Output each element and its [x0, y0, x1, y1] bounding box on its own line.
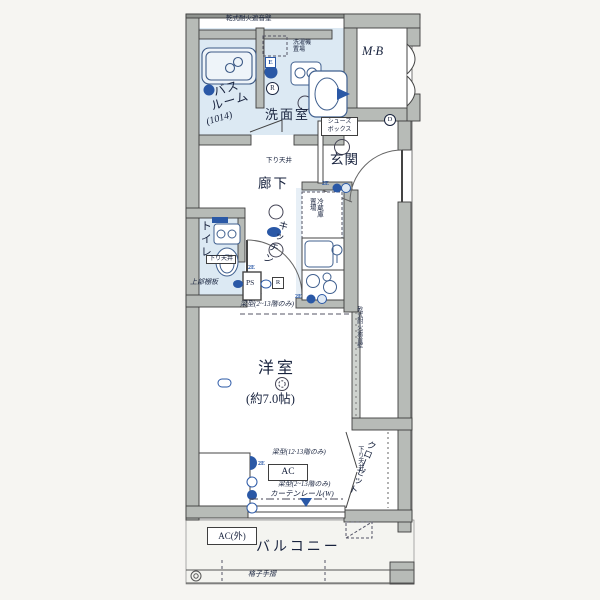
floor-plan: 乾式耐火遮音壁 バス ルーム (1014) 洗濯機 置場 E R 洗面室 M·B…	[0, 0, 600, 600]
toilet-label: トイレ	[199, 220, 211, 259]
toilet-tank-knob1	[217, 230, 225, 238]
right-outer-wall	[398, 202, 411, 532]
wall-switch-icon	[218, 379, 231, 387]
closet-bottom-wall	[344, 510, 412, 522]
left-wall	[186, 14, 199, 520]
e2-room-mark: 2E	[258, 461, 265, 468]
room-outlet3-icon	[247, 503, 257, 513]
right-wall-stub	[398, 121, 411, 150]
beam-note-bottom: 梁型(2~13階のみ)	[278, 481, 330, 489]
shoes-box-label: シューズ ボックス	[321, 117, 358, 136]
lowered-ceiling-toilet: 下り天井	[206, 255, 236, 264]
balcony-label: バルコニー	[256, 540, 341, 556]
r-mark-corridor: R	[272, 277, 284, 289]
beam-note-top: 梁型(2~13階のみ)	[240, 301, 294, 309]
meter-box-label: M·B	[362, 44, 383, 58]
bathtub	[202, 48, 256, 84]
e2-kitchen-mark: 2E	[295, 294, 302, 301]
lowered-ceiling-corridor: 下り天井	[266, 157, 292, 164]
mb-right-stub-top	[407, 28, 420, 46]
laundry-place-label: 洗濯機 置場	[293, 40, 311, 53]
d-mark: D	[384, 114, 396, 126]
e2-toilet-mark: 2E	[248, 265, 255, 272]
e-mark: E	[265, 57, 276, 68]
balcony-corner-block	[390, 562, 414, 584]
corridor-outlet-icon	[261, 280, 271, 288]
e2-fridge-mark: 2E	[322, 181, 329, 188]
corridor-label: 廊下	[258, 176, 289, 191]
r-mark-washroom: R	[266, 82, 279, 95]
wall-note-right: 乾式耐火遮音壁	[355, 306, 362, 348]
curtain-rail-label: カーテンレール(W)	[270, 490, 334, 498]
pipe-space-label: PS	[246, 279, 254, 287]
beam-note-mid: 梁型(12·13階のみ)	[272, 449, 326, 457]
ac-unit-label: AC	[268, 464, 308, 481]
western-room-label: 洋室	[258, 360, 296, 378]
toilet-outlet-icon	[233, 280, 243, 288]
room-outlet1-icon	[247, 477, 257, 487]
fridge-place-label: 冷蔵庫 置場	[308, 198, 323, 218]
corridor-top-wall-left	[199, 135, 251, 145]
kitchen-right-wall	[344, 190, 358, 312]
western-room-size: (約7.0帖)	[246, 392, 295, 406]
closet-top-wall	[352, 418, 412, 430]
pillar-niche	[199, 453, 250, 506]
washroom-label: 洗面室	[265, 108, 310, 123]
toilet-tank-knob2	[228, 230, 236, 238]
mb-top-wall	[344, 14, 420, 28]
mb-door-leaf-top	[407, 44, 415, 74]
soundproof-wall-bar	[199, 30, 332, 39]
bath-partition-wall	[256, 28, 264, 108]
toilet-control-icon	[212, 217, 228, 223]
toilet-top-wall	[186, 208, 245, 218]
toilet-bottom-wall	[186, 295, 247, 307]
kitchen-sink-unit	[302, 238, 344, 270]
washer-pan-drain1	[295, 68, 305, 78]
upper-shelf-label: 上部棚板	[190, 279, 218, 287]
fridge-outlet1-icon	[333, 184, 342, 193]
ac-outdoor-label: AC(外)	[207, 527, 257, 545]
kitchen-outlet2-icon	[318, 295, 327, 304]
handrail-label: 格子手摺	[248, 571, 276, 579]
room-bottom-wall-left	[186, 506, 248, 518]
fridge-outlet2-icon	[342, 184, 351, 193]
wall-note-top: 乾式耐火遮音壁	[226, 15, 272, 22]
kitchen-outlet1-icon	[307, 295, 316, 304]
entrance-label: 玄関	[330, 152, 359, 167]
